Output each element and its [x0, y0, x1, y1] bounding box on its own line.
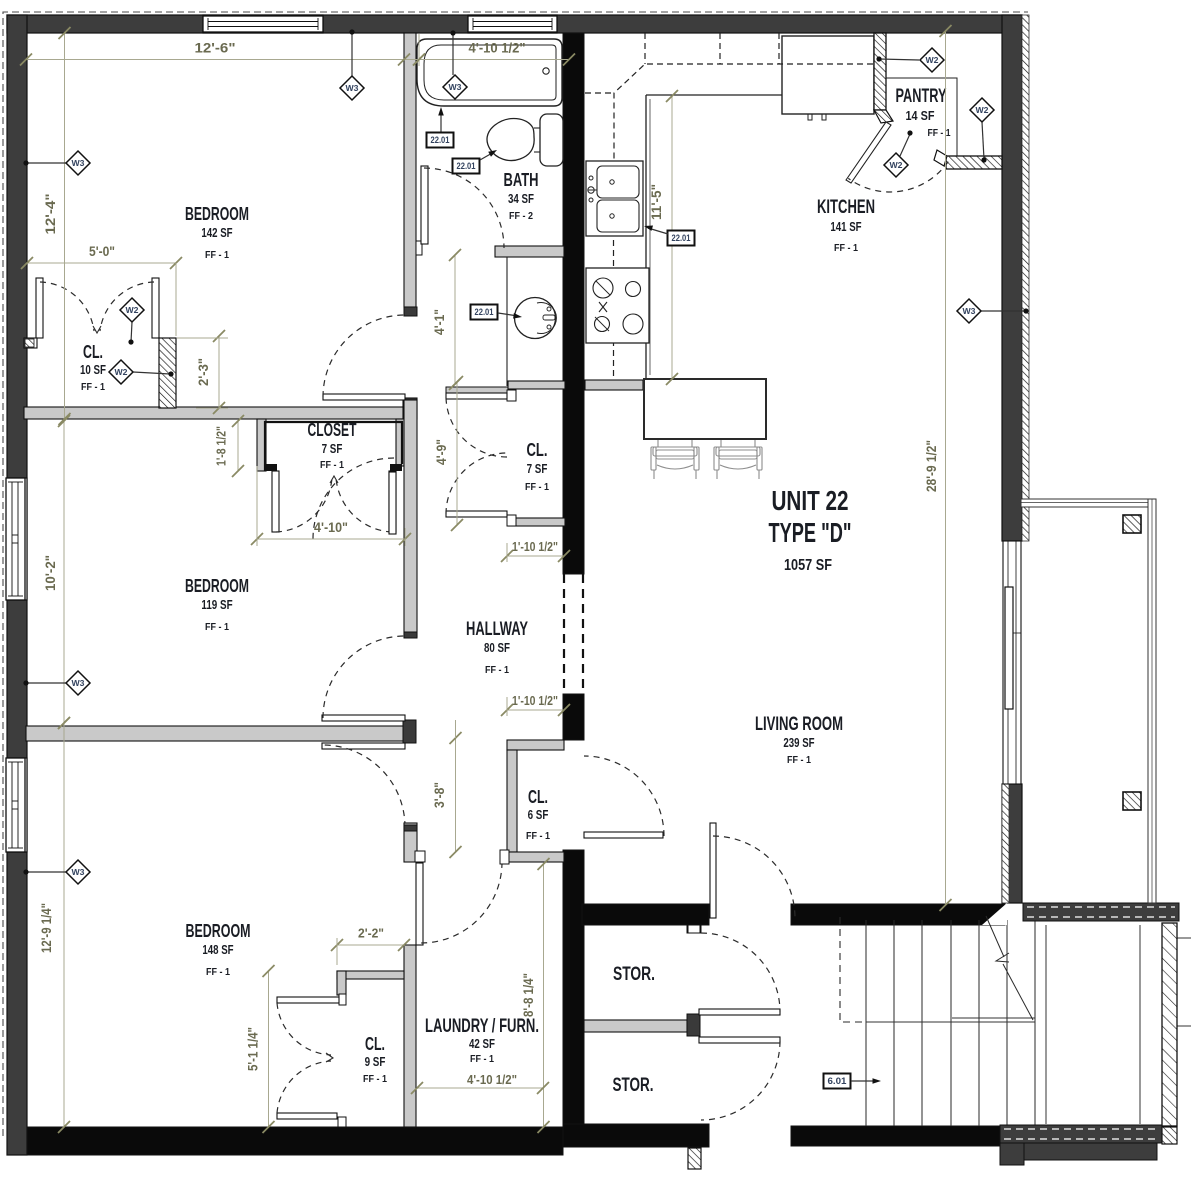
svg-text:FF - 1: FF - 1: [928, 127, 951, 139]
svg-text:7 SF: 7 SF: [527, 461, 548, 476]
svg-text:LIVING ROOM: LIVING ROOM: [755, 714, 843, 735]
svg-text:FF - 1: FF - 1: [834, 242, 858, 254]
svg-text:22.01: 22.01: [431, 135, 450, 145]
svg-text:FF - 1: FF - 1: [787, 754, 811, 766]
svg-text:BEDROOM: BEDROOM: [185, 203, 249, 224]
svg-text:7 SF: 7 SF: [322, 441, 343, 456]
svg-text:FF - 1: FF - 1: [363, 1073, 387, 1085]
svg-text:12'-4": 12'-4": [42, 194, 58, 235]
svg-text:HALLWAY: HALLWAY: [466, 619, 528, 640]
svg-text:148 SF: 148 SF: [202, 942, 233, 957]
svg-text:4'-9": 4'-9": [433, 439, 449, 465]
svg-text:80 SF: 80 SF: [484, 640, 510, 655]
svg-text:1057 SF: 1057 SF: [784, 557, 832, 574]
svg-text:STOR.: STOR.: [613, 963, 655, 985]
svg-text:CL.: CL.: [83, 342, 103, 362]
svg-text:6.01: 6.01: [828, 1076, 847, 1086]
svg-text:W3: W3: [963, 306, 976, 316]
svg-text:1'-8 1/2": 1'-8 1/2": [214, 426, 229, 466]
svg-text:22.01: 22.01: [475, 307, 494, 317]
svg-text:42 SF: 42 SF: [469, 1036, 495, 1051]
svg-text:10'-2": 10'-2": [42, 555, 58, 591]
svg-text:1'-10 1/2": 1'-10 1/2": [512, 539, 558, 554]
svg-text:FF - 1: FF - 1: [470, 1053, 494, 1065]
svg-text:CL.: CL.: [527, 440, 548, 460]
svg-text:CL.: CL.: [528, 787, 548, 807]
svg-text:10 SF: 10 SF: [80, 362, 106, 377]
svg-text:34 SF: 34 SF: [508, 191, 534, 206]
svg-text:FF - 1: FF - 1: [206, 966, 230, 978]
svg-text:4'-10 1/2": 4'-10 1/2": [467, 1072, 517, 1087]
svg-text:12'-6": 12'-6": [195, 40, 236, 56]
svg-text:3'-8": 3'-8": [431, 782, 447, 808]
svg-text:119 SF: 119 SF: [201, 597, 232, 612]
svg-text:4'-10 1/2": 4'-10 1/2": [469, 40, 526, 56]
svg-text:W3: W3: [449, 82, 462, 92]
svg-text:TYPE "D": TYPE "D": [769, 517, 852, 548]
svg-text:9 SF: 9 SF: [365, 1054, 386, 1069]
svg-text:STOR.: STOR.: [613, 1074, 654, 1096]
svg-text:1'-10 1/2": 1'-10 1/2": [512, 693, 558, 708]
svg-text:FF - 1: FF - 1: [525, 481, 549, 493]
svg-text:22.01: 22.01: [672, 233, 691, 243]
svg-text:4'-10": 4'-10": [314, 519, 348, 535]
svg-text:11'-5": 11'-5": [648, 184, 664, 220]
svg-text:12'-9 1/4": 12'-9 1/4": [38, 903, 54, 953]
svg-text:FF - 1: FF - 1: [526, 830, 550, 842]
svg-text:BEDROOM: BEDROOM: [186, 920, 251, 941]
svg-text:W2: W2: [126, 305, 139, 315]
svg-text:W2: W2: [976, 105, 989, 115]
svg-text:BEDROOM: BEDROOM: [185, 575, 249, 596]
svg-text:FF - 1: FF - 1: [205, 249, 229, 261]
svg-text:4'-1": 4'-1": [431, 309, 447, 335]
svg-text:239 SF: 239 SF: [783, 735, 814, 750]
svg-text:UNIT 22: UNIT 22: [772, 485, 849, 516]
svg-text:FF - 1: FF - 1: [485, 664, 509, 676]
svg-text:14 SF: 14 SF: [906, 109, 935, 123]
svg-text:5'-1 1/4": 5'-1 1/4": [245, 1027, 261, 1071]
svg-text:142 SF: 142 SF: [201, 225, 232, 240]
svg-text:FF - 2: FF - 2: [509, 210, 533, 222]
svg-text:FF - 1: FF - 1: [205, 621, 229, 633]
svg-text:2'-3": 2'-3": [195, 358, 211, 386]
svg-text:6 SF: 6 SF: [528, 807, 549, 822]
svg-text:FF - 1: FF - 1: [320, 459, 344, 471]
svg-text:LAUNDRY / FURN.: LAUNDRY / FURN.: [425, 1016, 539, 1037]
svg-text:KITCHEN: KITCHEN: [817, 197, 875, 218]
svg-text:28'-9 1/2": 28'-9 1/2": [923, 440, 939, 492]
svg-text:W2: W2: [926, 55, 939, 65]
svg-text:W2: W2: [890, 160, 903, 170]
svg-text:2'-2": 2'-2": [358, 926, 384, 941]
svg-text:BATH: BATH: [504, 170, 539, 190]
svg-text:CLOSET: CLOSET: [308, 420, 357, 440]
svg-text:8'-8 1/4": 8'-8 1/4": [520, 973, 536, 1017]
svg-text:22.01: 22.01: [457, 161, 476, 171]
svg-text:W3: W3: [72, 158, 85, 168]
svg-text:PANTRY: PANTRY: [896, 86, 947, 107]
svg-text:W3: W3: [72, 867, 85, 877]
svg-text:W3: W3: [346, 83, 359, 93]
svg-text:141 SF: 141 SF: [830, 219, 861, 234]
svg-text:W3: W3: [72, 678, 85, 688]
svg-text:FF - 1: FF - 1: [81, 381, 105, 393]
svg-text:CL.: CL.: [365, 1034, 385, 1054]
svg-text:W2: W2: [115, 367, 128, 377]
svg-text:5'-0": 5'-0": [89, 243, 115, 259]
